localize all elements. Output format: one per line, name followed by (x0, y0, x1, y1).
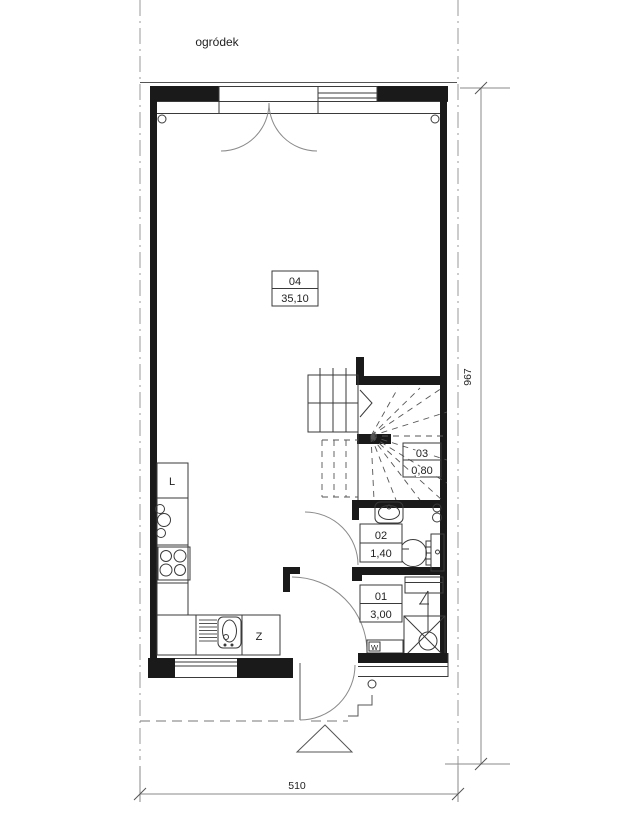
garden-french-door (221, 103, 317, 151)
dimension-vertical: 967 (445, 82, 510, 770)
room-02-area: 1,40 (370, 548, 391, 560)
fridge-label: L (169, 476, 175, 488)
stairwell-walls (356, 357, 447, 385)
floor-plan-drawing: ogródek 04 35,10 (0, 0, 643, 838)
dimension-horizontal-value: 510 (288, 780, 306, 792)
top-wall-left-segment (150, 86, 219, 101)
room-01-label-box: 01 3,00 (360, 585, 402, 622)
hall-corner-wall-h (283, 567, 300, 574)
room-03-area: 0,80 (411, 465, 432, 477)
sink-section-label: Z (256, 631, 263, 643)
wc-door-jamb (352, 508, 359, 520)
top-window (318, 93, 377, 98)
meter-box: W (367, 640, 403, 653)
room-04-id: 04 (289, 276, 301, 288)
room-02-label-box: 02 1,40 (360, 524, 409, 562)
shelf (405, 577, 443, 593)
entrance-triangle-icon (297, 725, 352, 752)
hall-corner-wall-v (283, 574, 290, 592)
post-symbol (368, 680, 376, 688)
room-01-area: 3,00 (370, 609, 391, 621)
door-leaf-arc-left (221, 103, 269, 151)
stairwell-wall-stub (356, 357, 364, 376)
stairwell-top-wall (356, 376, 447, 385)
bottom-wall-left (148, 658, 293, 678)
drainboard-lines (199, 620, 217, 641)
room-04-label-box: 04 35,10 (272, 271, 318, 306)
meter-label: W (371, 643, 379, 652)
bottom-window (175, 662, 237, 666)
room-02-id: 02 (375, 530, 387, 542)
room-03-id: 03 (416, 448, 428, 460)
entry-door-arc (300, 665, 355, 720)
threshold-step (348, 695, 372, 716)
stove (158, 547, 190, 580)
wc-door-arc (305, 512, 358, 565)
lower-stair-treads-dashed (322, 440, 358, 497)
dimension-horizontal: 510 (134, 766, 464, 802)
garden-label: ogródek (195, 35, 239, 49)
room-03-label-box: 03 0,80 (403, 443, 441, 477)
door-leaf-arc-right (269, 103, 317, 151)
top-wall-right-segment (377, 86, 448, 101)
room-04-area: 35,10 (281, 293, 309, 305)
corner-symbol-left (158, 115, 166, 123)
kitchen-sink (199, 617, 241, 648)
floor-plan-canvas: ogródek 04 35,10 (0, 0, 643, 838)
toilet-bowl (400, 540, 427, 567)
direction-arrow-icon (419, 591, 429, 632)
bottom-wall-right (358, 653, 448, 688)
corner-symbol-right (431, 115, 439, 123)
top-wall (140, 83, 457, 124)
exterior-wall-left (150, 101, 157, 678)
dimension-vertical-value: 967 (462, 368, 474, 386)
kitchen: L Z (156, 463, 281, 655)
shaft-x-box (404, 616, 445, 657)
plumbing-symbol-3 (157, 529, 166, 538)
plumbing-symbol-2 (158, 514, 171, 527)
hall-door-arc (292, 577, 367, 652)
room-01-id: 01 (375, 591, 387, 603)
stair-break-line (360, 390, 372, 417)
